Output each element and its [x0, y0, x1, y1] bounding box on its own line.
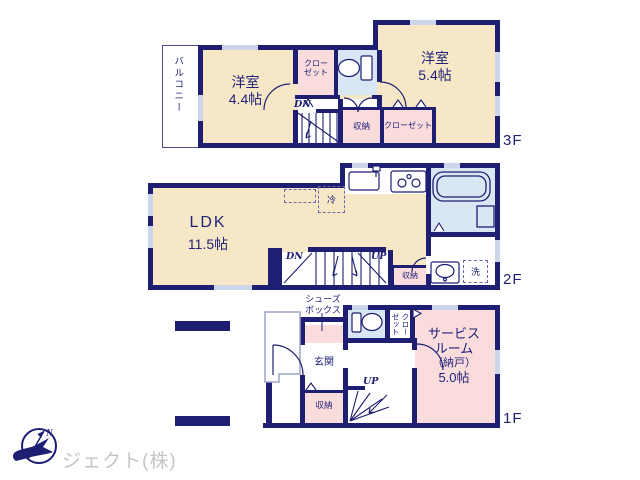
up-label-1f: UP — [363, 376, 378, 387]
window-marker — [222, 45, 258, 50]
dn-label-2f: DN — [286, 251, 303, 262]
up-label-2f: UP — [371, 251, 386, 262]
window-marker — [432, 305, 458, 310]
storage-2f-label: 収納 — [394, 271, 426, 280]
wall — [343, 343, 348, 350]
ldk-label: LDK 11.5帖 — [163, 214, 253, 252]
ldk-name: LDK — [163, 214, 253, 233]
window-marker — [495, 52, 500, 82]
wall — [343, 107, 436, 110]
storage-1f-label: 収納 — [305, 400, 343, 410]
room-54-size: 5.4帖 — [385, 67, 485, 84]
wall — [372, 95, 382, 99]
shoebox-label: シューズ ボックス — [296, 294, 350, 315]
wall — [268, 248, 282, 290]
bathroom-2f — [431, 168, 495, 232]
wall — [426, 168, 431, 256]
window-marker — [410, 20, 436, 25]
wall — [373, 20, 500, 25]
storage-3f-label: 収納 — [343, 121, 380, 131]
wall — [148, 183, 344, 188]
entrance-label: 玄関 — [305, 357, 343, 369]
closet-upper-label: クロー ゼット — [298, 59, 334, 78]
window-marker — [495, 240, 500, 262]
wall — [431, 232, 495, 237]
company-name: ジェクト(株) — [62, 446, 177, 473]
door-arc-entrance — [273, 345, 303, 375]
refrigerator-label: 冷 — [327, 193, 336, 206]
wall — [426, 274, 431, 290]
shoebox-1f — [305, 325, 343, 343]
toilet-room-1f — [348, 310, 385, 338]
window-marker — [352, 163, 368, 168]
porch-outline — [265, 312, 300, 382]
window-marker — [214, 285, 252, 290]
closet-lower-label: クローゼット — [384, 121, 432, 130]
refrigerator-space: 冷 — [318, 186, 345, 213]
wall — [377, 50, 382, 82]
wall — [495, 20, 500, 148]
service-room-label: サービス ルーム （納戸） 5.0帖 — [410, 326, 498, 385]
floor-label-1f: 1F — [503, 410, 523, 427]
closet-1f-label: クローゼット — [390, 311, 410, 338]
wall — [148, 285, 500, 290]
ldk-size: 11.5帖 — [163, 236, 253, 253]
balcony-label: バルコニー — [172, 56, 183, 144]
dn-label-3f: DN — [294, 99, 311, 110]
laundry-label: 洗 — [471, 265, 480, 278]
floor-label-2f: 2F — [503, 271, 523, 288]
wall — [334, 48, 338, 95]
wall — [198, 143, 500, 148]
wall — [432, 107, 436, 143]
stair-landing-edge — [316, 109, 340, 113]
window-marker — [352, 305, 368, 310]
bird-icon — [13, 438, 53, 461]
counter-space — [284, 189, 316, 203]
kitchen-counter — [345, 168, 426, 194]
laundry-space: 洗 — [463, 260, 488, 283]
room-44-label: 洋室 4.4帖 — [198, 74, 293, 107]
room-44-name: 洋室 — [198, 74, 293, 91]
window-marker — [444, 163, 460, 168]
wall — [266, 377, 272, 423]
compass-north-label: N — [45, 428, 54, 439]
stairs-1f — [350, 391, 389, 421]
wall — [305, 390, 343, 393]
site-bar — [175, 321, 230, 331]
site-bar — [175, 416, 230, 426]
wall — [343, 386, 365, 390]
floor-label-3f: 3F — [503, 132, 523, 149]
window-marker — [495, 96, 500, 116]
wall — [300, 317, 305, 345]
compass-icon: N — [13, 428, 56, 463]
toilet-room-3f — [338, 50, 377, 95]
floorplan: 冷 洗 — [0, 0, 640, 480]
wall — [391, 265, 426, 268]
window-marker — [148, 226, 153, 248]
room-44-size: 4.4帖 — [198, 91, 293, 108]
wall — [293, 110, 298, 143]
wall — [263, 423, 500, 428]
window-marker — [148, 194, 153, 216]
wall — [343, 368, 348, 423]
wall — [343, 338, 417, 343]
wall — [300, 317, 348, 322]
wall — [495, 163, 500, 290]
room-54-name: 洋室 — [385, 50, 485, 67]
room-54-label: 洋室 5.4帖 — [385, 50, 485, 83]
